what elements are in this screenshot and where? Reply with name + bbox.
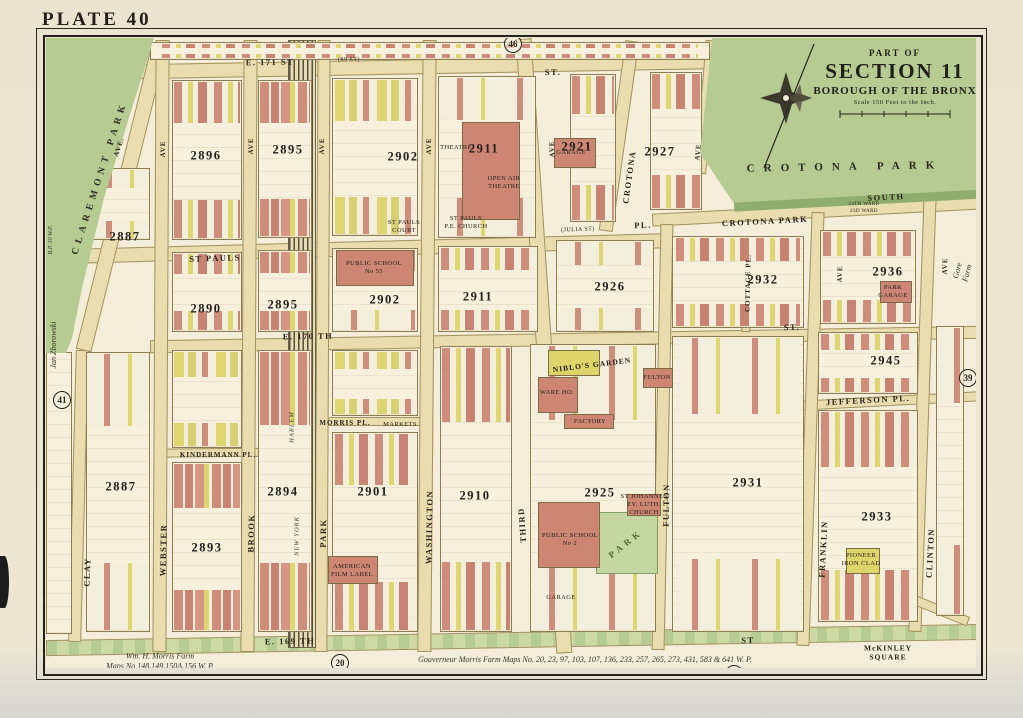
feature-label-american-film-label: AMERICAN FILM LABEL xyxy=(331,563,373,579)
margin-circle-41: 41 xyxy=(53,391,71,409)
street-label-st: ST. xyxy=(784,322,801,333)
block-number-2902: 2902 xyxy=(370,293,401,308)
feature-label-theatre: THEATRE xyxy=(440,144,472,152)
margin-circle-21: 21 xyxy=(725,665,743,668)
block-2890 xyxy=(172,252,242,332)
block-2895-s xyxy=(258,250,312,332)
margin-circle-20: 20 xyxy=(331,654,349,668)
street-label-harlem: HARLEM xyxy=(289,411,296,443)
block-2927 xyxy=(650,72,702,210)
feature-label-garage: GARAGE xyxy=(546,594,575,602)
road-brook-ave xyxy=(240,40,257,652)
feature-label-st-pauls-court: ST PAULS COURT xyxy=(388,219,420,235)
street-label-webster: WEBSTER xyxy=(158,524,169,577)
margin-note-jan-zborowski: Jan Zborowski xyxy=(49,321,59,368)
block-number-2931: 2931 xyxy=(733,476,764,491)
block-north-strip xyxy=(150,42,710,60)
block-2893-n xyxy=(172,350,242,448)
street-label-brook: BROOK xyxy=(246,513,257,552)
block-number-2894: 2894 xyxy=(268,485,299,500)
block-2895-n xyxy=(258,80,312,238)
margin-note-wm-h-morris-farm-maps-no-148-1: Wm. H. Morris Farm Maps No 148,149,150A,… xyxy=(106,652,214,668)
street-label-park: PARK xyxy=(318,518,329,548)
feature-label-open-air-theatre: OPEN AIR THEATRE xyxy=(488,175,521,191)
street-label-ave: AVE xyxy=(941,257,950,274)
block-east-of-clinton xyxy=(936,326,964,616)
feature-label-factory: FACTORY xyxy=(574,418,606,426)
block-number-2893: 2893 xyxy=(192,541,223,556)
block-number-2936: 2936 xyxy=(873,265,904,280)
street-label-clinton: CLINTON xyxy=(924,528,937,578)
street-label-ave: AVE xyxy=(318,137,326,154)
feature-label-ware-ho: WARE HO. xyxy=(540,389,574,397)
street-label-ave: AVE xyxy=(548,140,557,157)
margin-note-gouverneur-morris-farm-maps-no: Gouverneur Morris Farm Maps No. 20, 23, … xyxy=(418,655,752,665)
street-label-e-170-th: E. 170 TH xyxy=(283,331,334,342)
street-label-e-171-st: E. 171 ST xyxy=(246,57,295,68)
street-label-clay: CLAY xyxy=(81,557,92,587)
feature-label-fulton: FULTON xyxy=(643,374,670,382)
margin-note-gore-farm: Gore Farm xyxy=(951,261,976,284)
street-label-new-york: NEW YORK xyxy=(294,516,301,556)
feature-label-st-pauls-p-e-church: ST PAULS P.E. CHURCH xyxy=(444,215,487,231)
street-label-st: ST. xyxy=(545,67,562,77)
street-label-st-pauls: ST PAULS xyxy=(189,252,241,264)
feature-label-pioneer-iron-clad: PIONEER IRON CLAD xyxy=(842,552,881,568)
block-number-2926: 2926 xyxy=(595,280,626,295)
block-number-2890: 2890 xyxy=(191,302,222,317)
block-number-2901: 2901 xyxy=(358,485,389,500)
block-2901-n xyxy=(332,350,418,416)
feature-label-st-johannes-ev-luth-church: ST JOHANNES EV. LUTH. CHURCH xyxy=(620,493,667,517)
margin-circle-39: 39 xyxy=(959,369,976,387)
block-number-2945: 2945 xyxy=(871,354,902,369)
feature-label-mckinley-square: McKINLEY SQUARE xyxy=(864,644,912,663)
block-number-2911: 2911 xyxy=(463,290,493,305)
block-2901-s xyxy=(332,432,418,632)
street-label-julia-st: (JULIA ST) xyxy=(561,226,595,233)
street-label-ave: AVE xyxy=(836,265,845,282)
street-label-st: ST xyxy=(741,635,755,645)
street-label-89-st: (89 ST) xyxy=(338,57,360,63)
street-label-ave: AVE xyxy=(425,137,433,154)
block-number-2887: 2887 xyxy=(110,230,141,245)
margin-note-b-p-30-w-p: B.P. 30 W.P. xyxy=(48,226,56,255)
street-label-washington: WASHINGTON xyxy=(423,490,434,565)
feature-label-public-school-no-2: PUBLIC SCHOOL No 2 xyxy=(542,532,598,548)
block-number-2911: 2911 xyxy=(469,142,499,157)
street-label-ave: AVE xyxy=(247,137,255,154)
street-label-kindermann-pl: KINDERMANN PL. xyxy=(180,451,256,459)
block-2945 xyxy=(818,332,918,394)
street-label-e-169-th: E. 169 TH xyxy=(265,636,316,647)
block-number-2927: 2927 xyxy=(645,145,676,160)
block-number-2896: 2896 xyxy=(191,149,222,164)
scale-bar xyxy=(835,109,955,119)
block-number-2902: 2902 xyxy=(388,150,419,165)
block-number-2925: 2925 xyxy=(585,486,616,501)
block-number-2910: 2910 xyxy=(460,489,491,504)
street-label-ave: AVE xyxy=(159,140,167,157)
block-number-2895: 2895 xyxy=(268,298,299,313)
feature-label-park-garage: PARK GARAGE xyxy=(878,284,907,300)
street-label-pl: PL. xyxy=(634,220,652,231)
compass-rose xyxy=(748,36,838,176)
feature-label-garage: GARAGE xyxy=(556,149,585,157)
feature-label-23d-ward: 23D WARD xyxy=(850,209,878,215)
block-number-2895: 2895 xyxy=(273,143,304,158)
street-label-ave: AVE xyxy=(693,143,702,161)
feature-label-public-school-no-55: PUBLIC SCHOOL No 55 xyxy=(346,260,402,276)
block-2932 xyxy=(672,236,804,328)
feature-label-24th-ward: 24TH WARD xyxy=(848,202,879,208)
street-label-third: THIRD xyxy=(516,507,528,543)
theatre-building xyxy=(462,122,520,220)
block-number-2933: 2933 xyxy=(862,510,893,525)
block-number-2887: 2887 xyxy=(106,480,137,495)
feature-label-markets: MARKETS xyxy=(383,421,417,429)
photo-artifact xyxy=(0,556,9,608)
block-number-2932: 2932 xyxy=(748,273,779,288)
street-label-morris-pl: MORRIS PL. xyxy=(319,419,370,427)
